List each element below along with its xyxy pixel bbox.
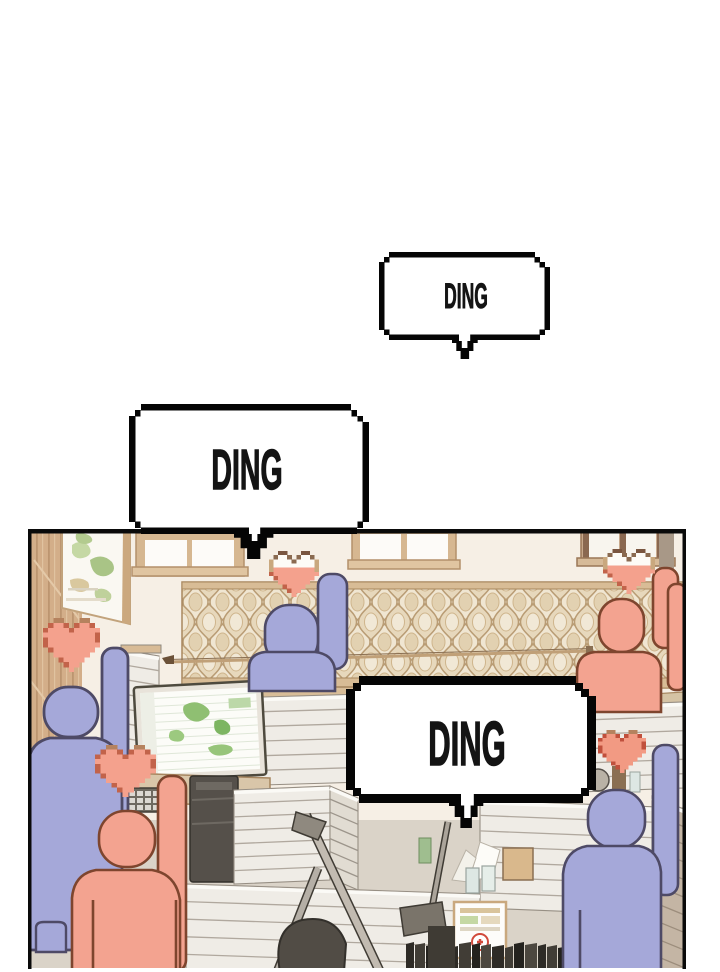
svg-text:DING: DING: [211, 437, 282, 502]
svg-text:DING: DING: [444, 276, 488, 315]
svg-text:DING: DING: [428, 711, 505, 779]
